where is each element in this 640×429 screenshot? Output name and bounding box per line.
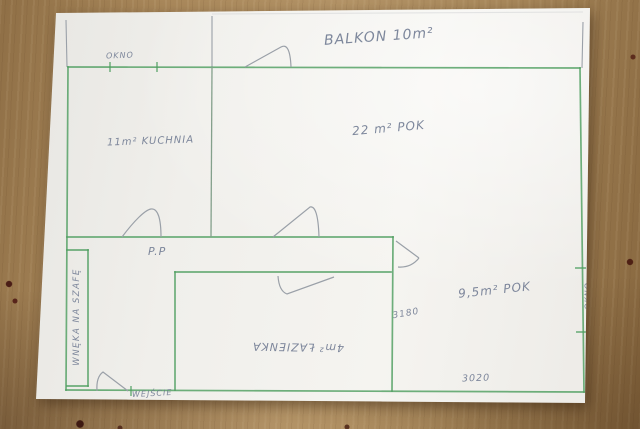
hallway-label: P.P bbox=[148, 245, 166, 258]
bathroom-label: 4m² ŁAZIENKA bbox=[252, 340, 344, 355]
door-swing-room-small bbox=[396, 241, 419, 267]
floor-plan-paper-sheet: BALKON 10m² OKNO 11m² KUCHNIA 22 m² POK … bbox=[0, 0, 640, 429]
wall-left bbox=[66, 67, 68, 390]
wall-kitchen-right bbox=[211, 67, 212, 237]
door-swing-balcony bbox=[245, 46, 291, 67]
dimension-3020-label: 3020 bbox=[462, 373, 491, 385]
door-swing-kitchen bbox=[122, 209, 161, 237]
paper-shadow: BALKON 10m² OKNO 11m² KUCHNIA 22 m² POK … bbox=[0, 0, 640, 429]
door-swing-bathroom bbox=[278, 276, 334, 294]
wall-top bbox=[68, 67, 580, 68]
floor-plan-drawing bbox=[0, 0, 640, 429]
window-top-label: OKNO bbox=[106, 51, 134, 61]
window-ticks bbox=[110, 62, 587, 396]
window-right-label: OKNO bbox=[584, 282, 593, 310]
photo-of-floor-plan-on-table: BALKON 10m² OKNO 11m² KUCHNIA 22 m² POK … bbox=[0, 0, 640, 429]
wardrobe-niche-label: WNĘKA NA SZAFĘ bbox=[72, 268, 82, 365]
door-swing-entrance bbox=[97, 372, 128, 391]
wall-right bbox=[580, 68, 584, 392]
door-swing-room-large bbox=[273, 207, 319, 237]
